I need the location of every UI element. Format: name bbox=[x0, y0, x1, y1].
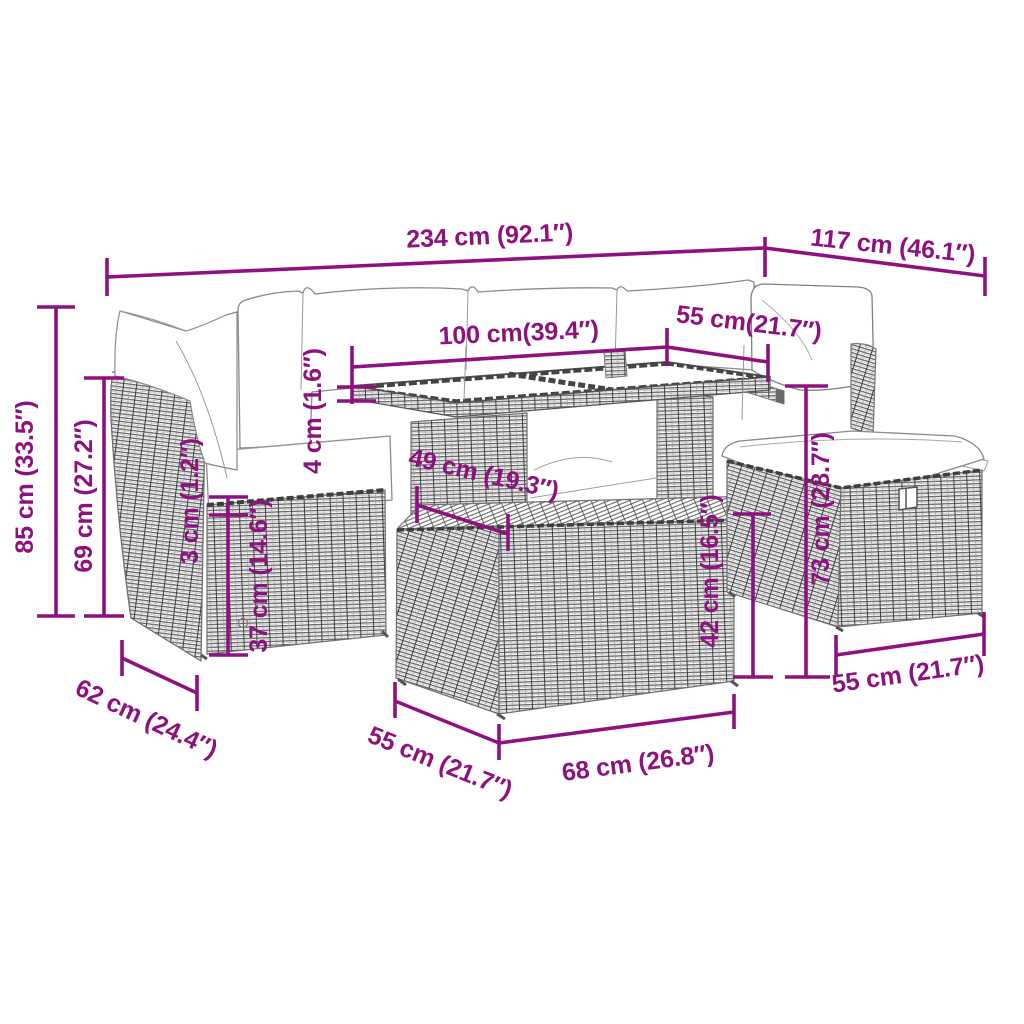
svg-text:85 cm (33.5″): 85 cm (33.5″) bbox=[11, 400, 39, 553]
svg-text:69 cm (27.2″): 69 cm (27.2″) bbox=[70, 419, 98, 572]
svg-text:3 cm (1.2″): 3 cm (1.2″) bbox=[176, 438, 204, 564]
svg-text:4 cm (1.6″): 4 cm (1.6″) bbox=[299, 348, 327, 474]
svg-text:73 cm (28.7″): 73 cm (28.7″) bbox=[807, 432, 835, 585]
svg-text:42 cm (16.5″): 42 cm (16.5″) bbox=[696, 494, 724, 647]
svg-text:37 cm (14.6″): 37 cm (14.6″) bbox=[245, 499, 273, 652]
